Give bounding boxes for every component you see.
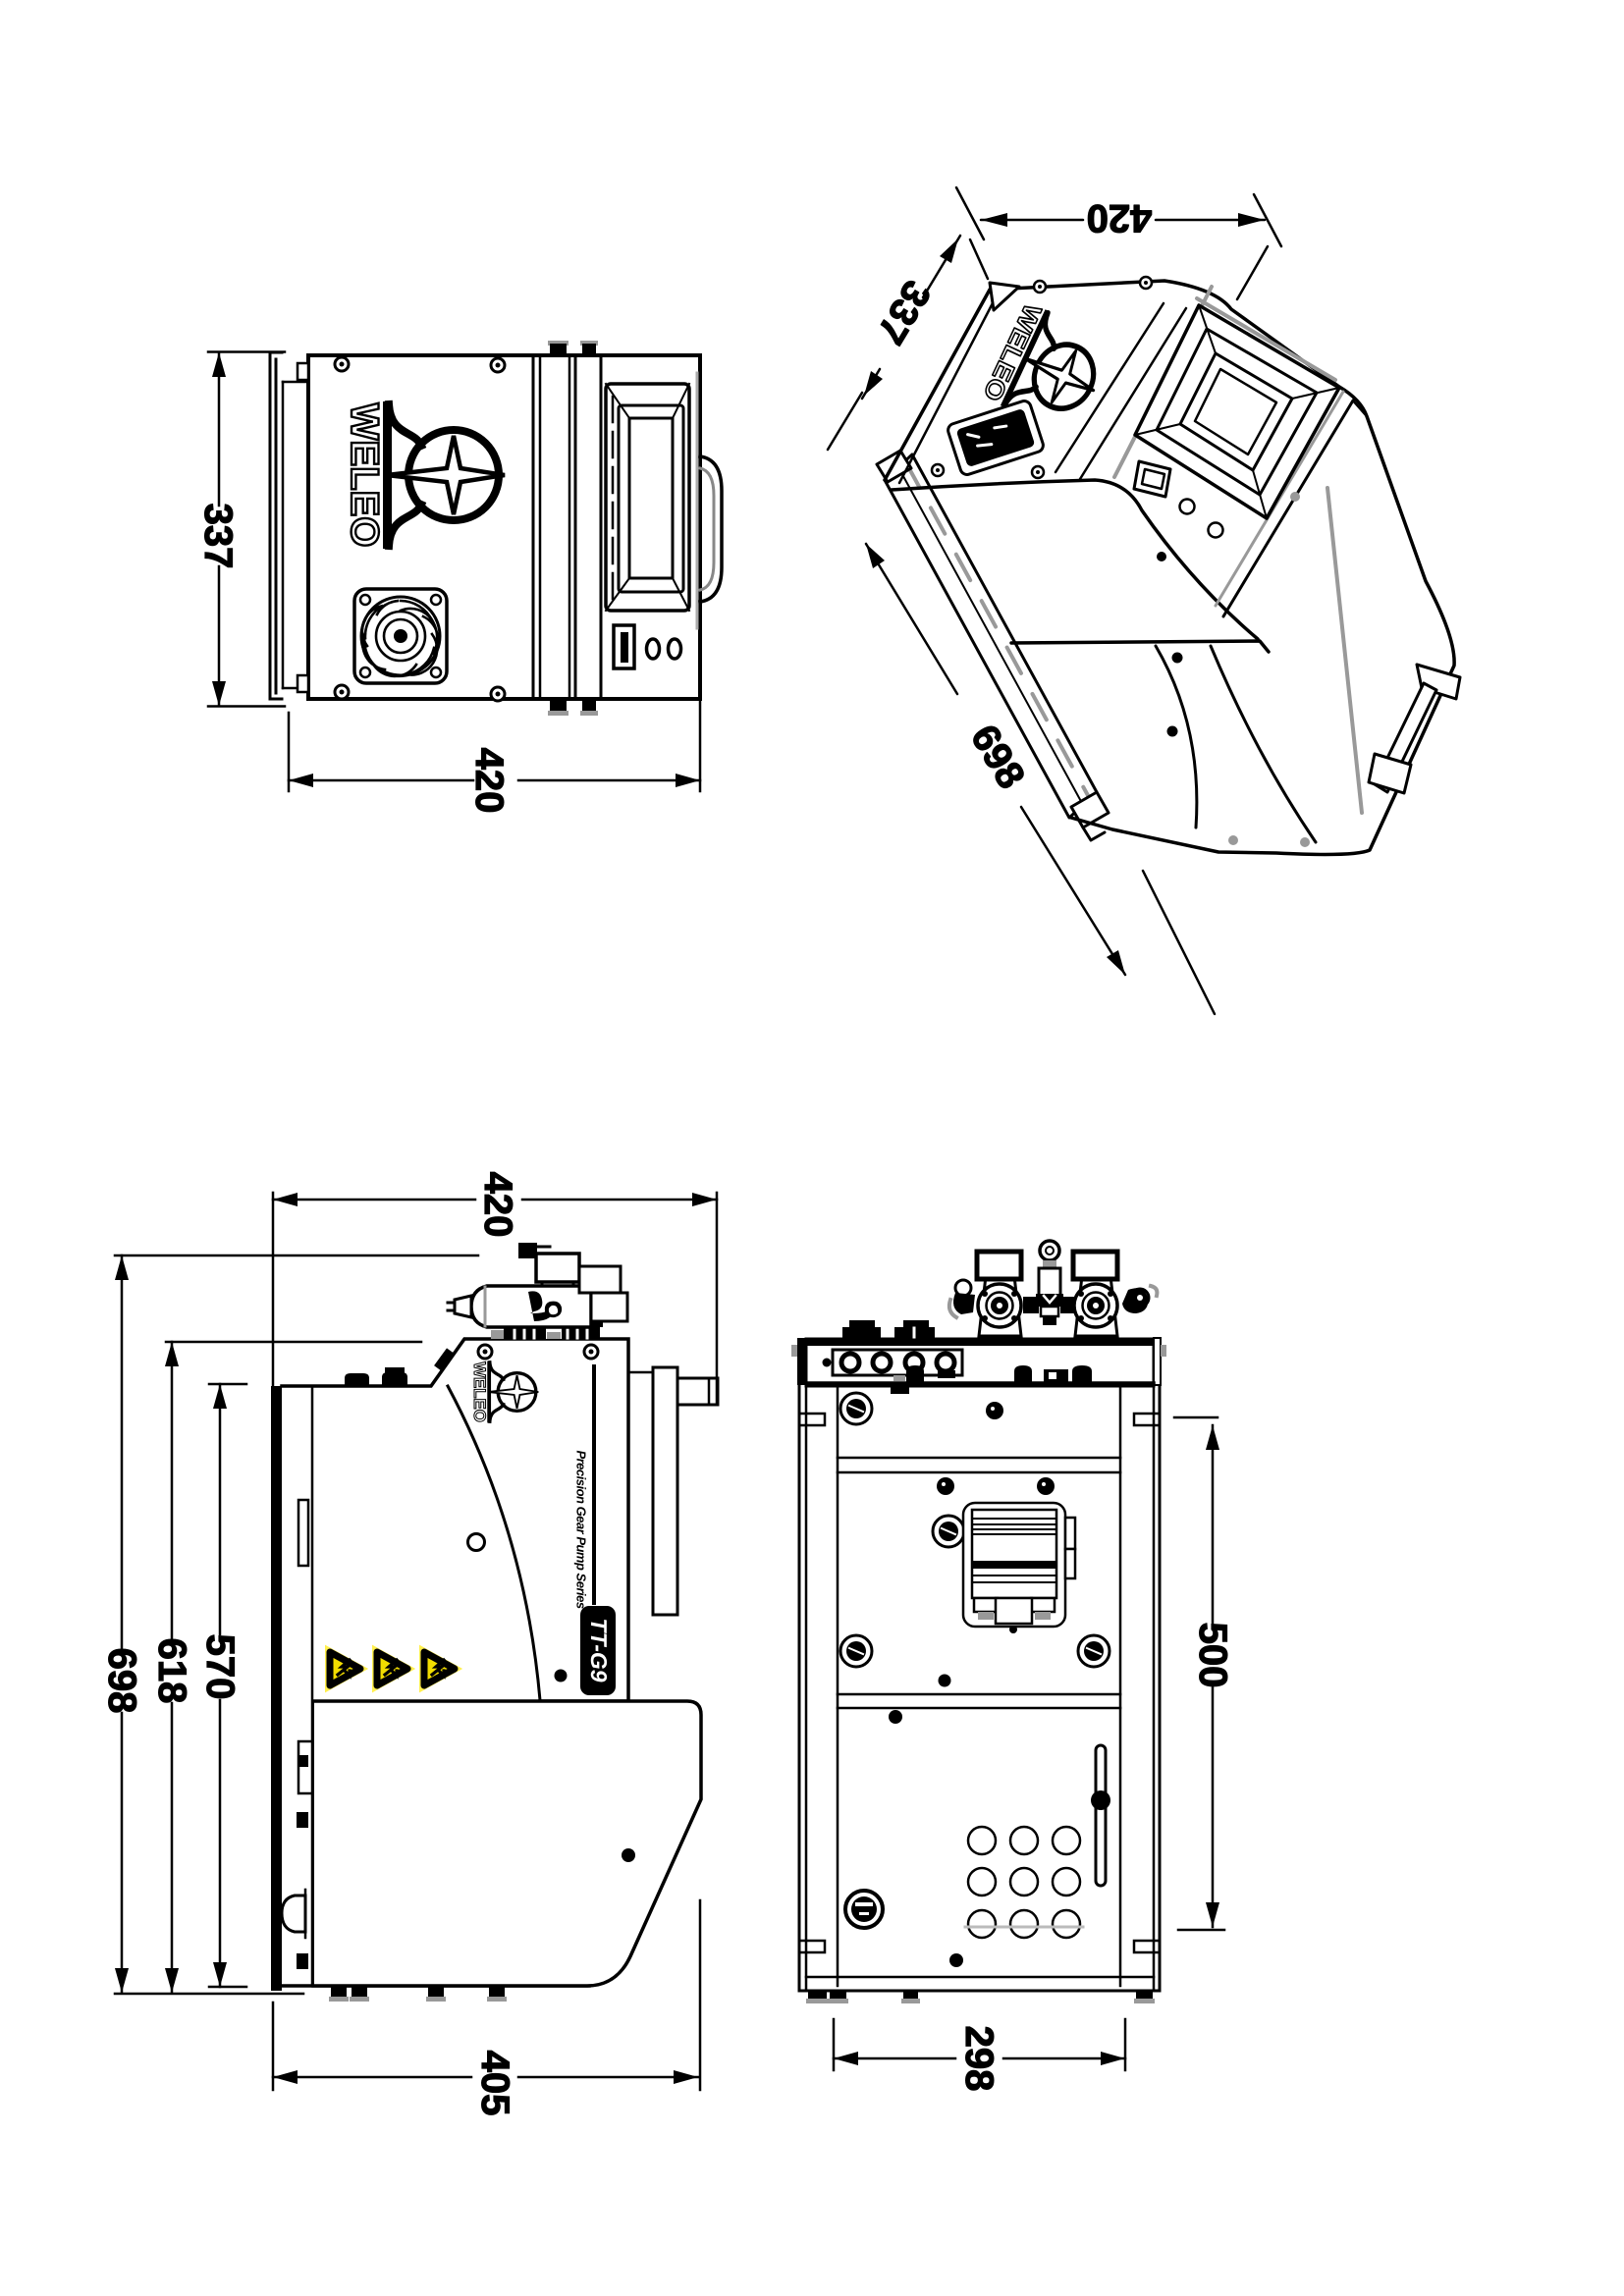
svg-text:420: 420 (1087, 196, 1153, 240)
svg-text:618: 618 (150, 1638, 193, 1704)
svg-text:Precision Gear Pump Series: Precision Gear Pump Series (574, 1450, 589, 1608)
svg-text:405: 405 (473, 2051, 516, 2116)
svg-text:337: 337 (196, 504, 240, 569)
svg-text:570: 570 (198, 1634, 242, 1700)
svg-text:420: 420 (467, 748, 511, 814)
svg-text:298: 298 (957, 2026, 1001, 2092)
svg-text:698: 698 (100, 1648, 143, 1714)
svg-text:500: 500 (1191, 1623, 1234, 1688)
svg-text:TT-G9: TT-G9 (586, 1618, 612, 1682)
svg-text:420: 420 (476, 1172, 519, 1238)
